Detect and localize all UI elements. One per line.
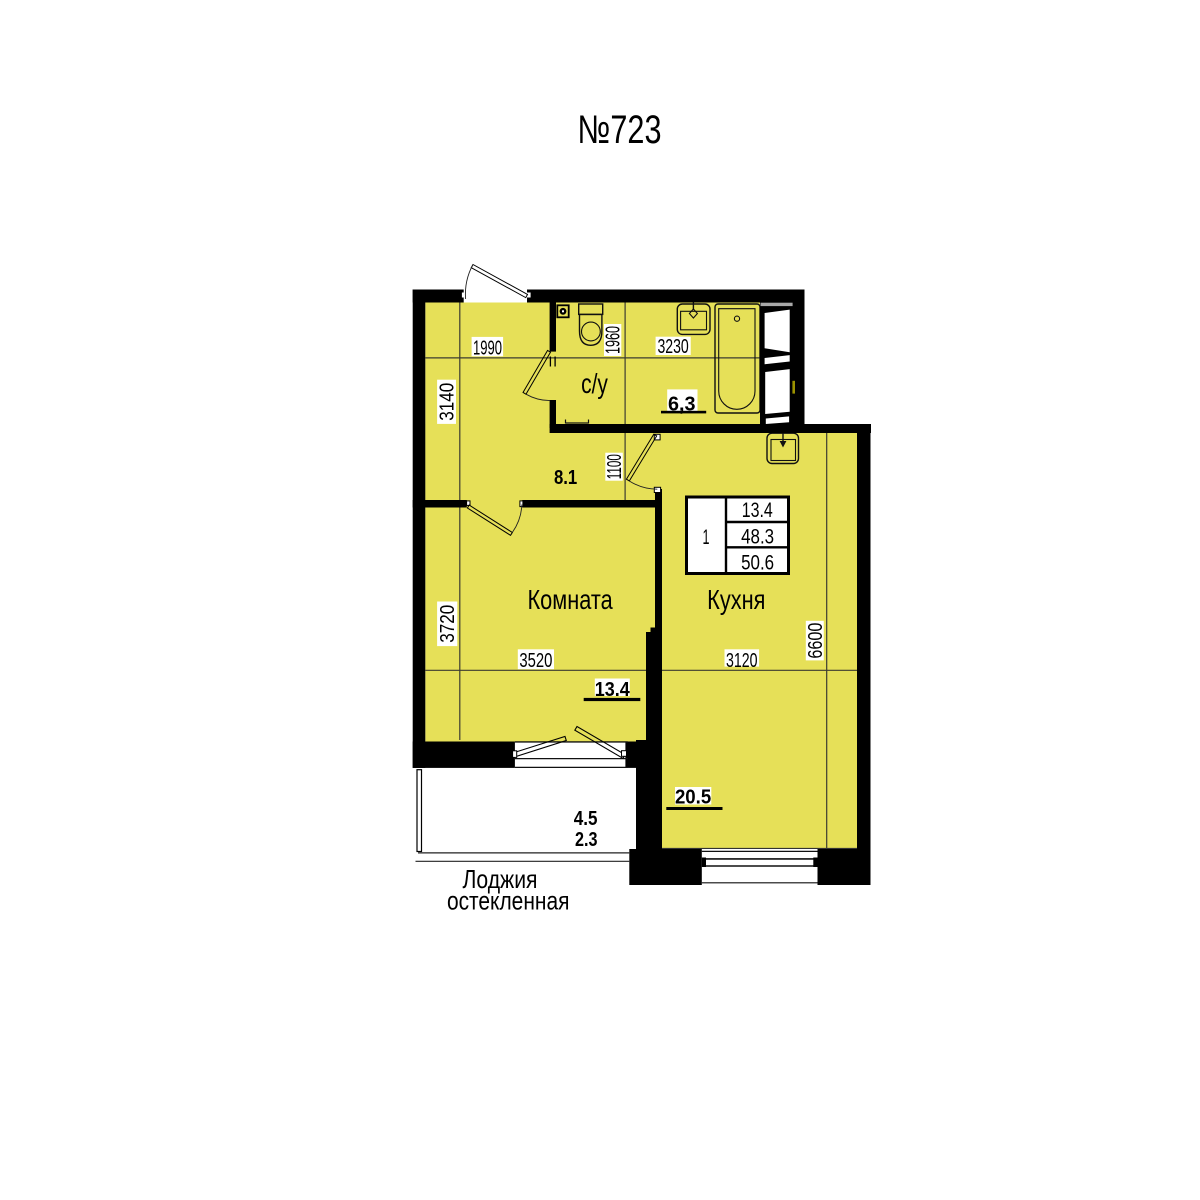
svg-text:3120: 3120 [726,650,758,672]
svg-text:6600: 6600 [805,623,827,659]
svg-text:1960: 1960 [603,326,625,354]
svg-text:Комната: Комната [528,584,614,615]
svg-text:4.5: 4.5 [574,808,598,830]
svg-text:3230: 3230 [657,336,688,358]
svg-text:3520: 3520 [519,650,552,672]
svg-text:8.1: 8.1 [554,467,577,489]
svg-text:Кухня: Кухня [707,584,765,615]
svg-text:13.4: 13.4 [742,498,773,522]
svg-text:3720: 3720 [437,605,459,643]
svg-text:№723: №723 [578,108,662,152]
svg-text:20.5: 20.5 [675,787,711,809]
svg-text:48.3: 48.3 [741,524,774,548]
svg-text:13.4: 13.4 [595,679,631,701]
svg-text:1: 1 [703,525,710,549]
svg-text:остекленная: остекленная [447,885,570,915]
svg-text:50.6: 50.6 [741,551,774,575]
svg-text:1100: 1100 [604,454,626,479]
svg-text:1990: 1990 [473,337,502,359]
svg-text:с/у: с/у [581,368,608,399]
svg-text:2.3: 2.3 [575,829,598,851]
svg-text:3140: 3140 [437,383,459,421]
